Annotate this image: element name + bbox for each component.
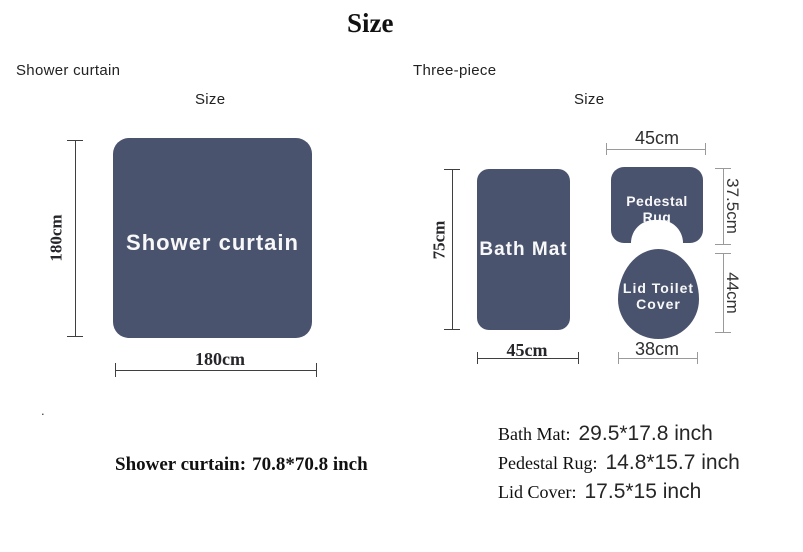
shower-curtain-section-label: Shower curtain xyxy=(16,62,120,79)
spec-row: Lid Cover: 17.5*15 inch xyxy=(498,480,740,504)
spec-value: 29.5*17.8 inch xyxy=(579,422,713,446)
three-piece-section-label: Three-piece xyxy=(413,62,496,79)
curtain-width-label: 180cm xyxy=(185,349,255,370)
specs-list: Bath Mat: 29.5*17.8 inch Pedestal Rug: 1… xyxy=(498,422,740,509)
shower-curtain-shape-label: Shower curtain xyxy=(126,230,299,256)
lid-cover-shape: Lid Toilet Cover xyxy=(618,249,699,339)
pedestal-rug-shape: Pedestal Rug xyxy=(611,167,703,243)
spec-row: Bath Mat: 29.5*17.8 inch xyxy=(498,422,740,446)
bath-mat-label: Bath Mat xyxy=(479,239,567,261)
spec-name: Pedestal Rug: xyxy=(498,451,598,475)
lid-cover-label-line2: Cover xyxy=(636,296,681,312)
bath-mat-shape: Bath Mat xyxy=(477,169,570,330)
stray-dot: . xyxy=(41,403,45,418)
shower-curtain-spec: Shower curtain:70.8*70.8 inch xyxy=(115,454,368,476)
page-title: Size xyxy=(347,8,394,39)
lid-cover-width-label: 38cm xyxy=(622,339,692,360)
spec-row: Pedestal Rug: 14.8*15.7 inch xyxy=(498,451,740,475)
right-size-label: Size xyxy=(574,91,604,108)
shower-curtain-shape: Shower curtain xyxy=(113,138,312,338)
spec-value: 14.8*15.7 inch xyxy=(606,451,740,475)
pedestal-rug-width-label: 45cm xyxy=(622,128,692,149)
spec-value: 17.5*15 inch xyxy=(585,480,702,504)
spec-name: Lid Cover: xyxy=(498,480,577,504)
curtain-height-dimension-line xyxy=(67,140,83,337)
spec-value: 70.8*70.8 inch xyxy=(252,454,368,475)
bath-mat-width-label: 45cm xyxy=(492,340,562,361)
left-size-label: Size xyxy=(195,91,225,108)
lid-cover-label-line1: Lid Toilet xyxy=(623,280,694,296)
spec-name: Bath Mat: xyxy=(498,422,571,446)
size-chart-canvas: Size Shower curtain Size Shower curtain … xyxy=(0,0,803,552)
spec-name: Shower curtain: xyxy=(115,454,246,475)
